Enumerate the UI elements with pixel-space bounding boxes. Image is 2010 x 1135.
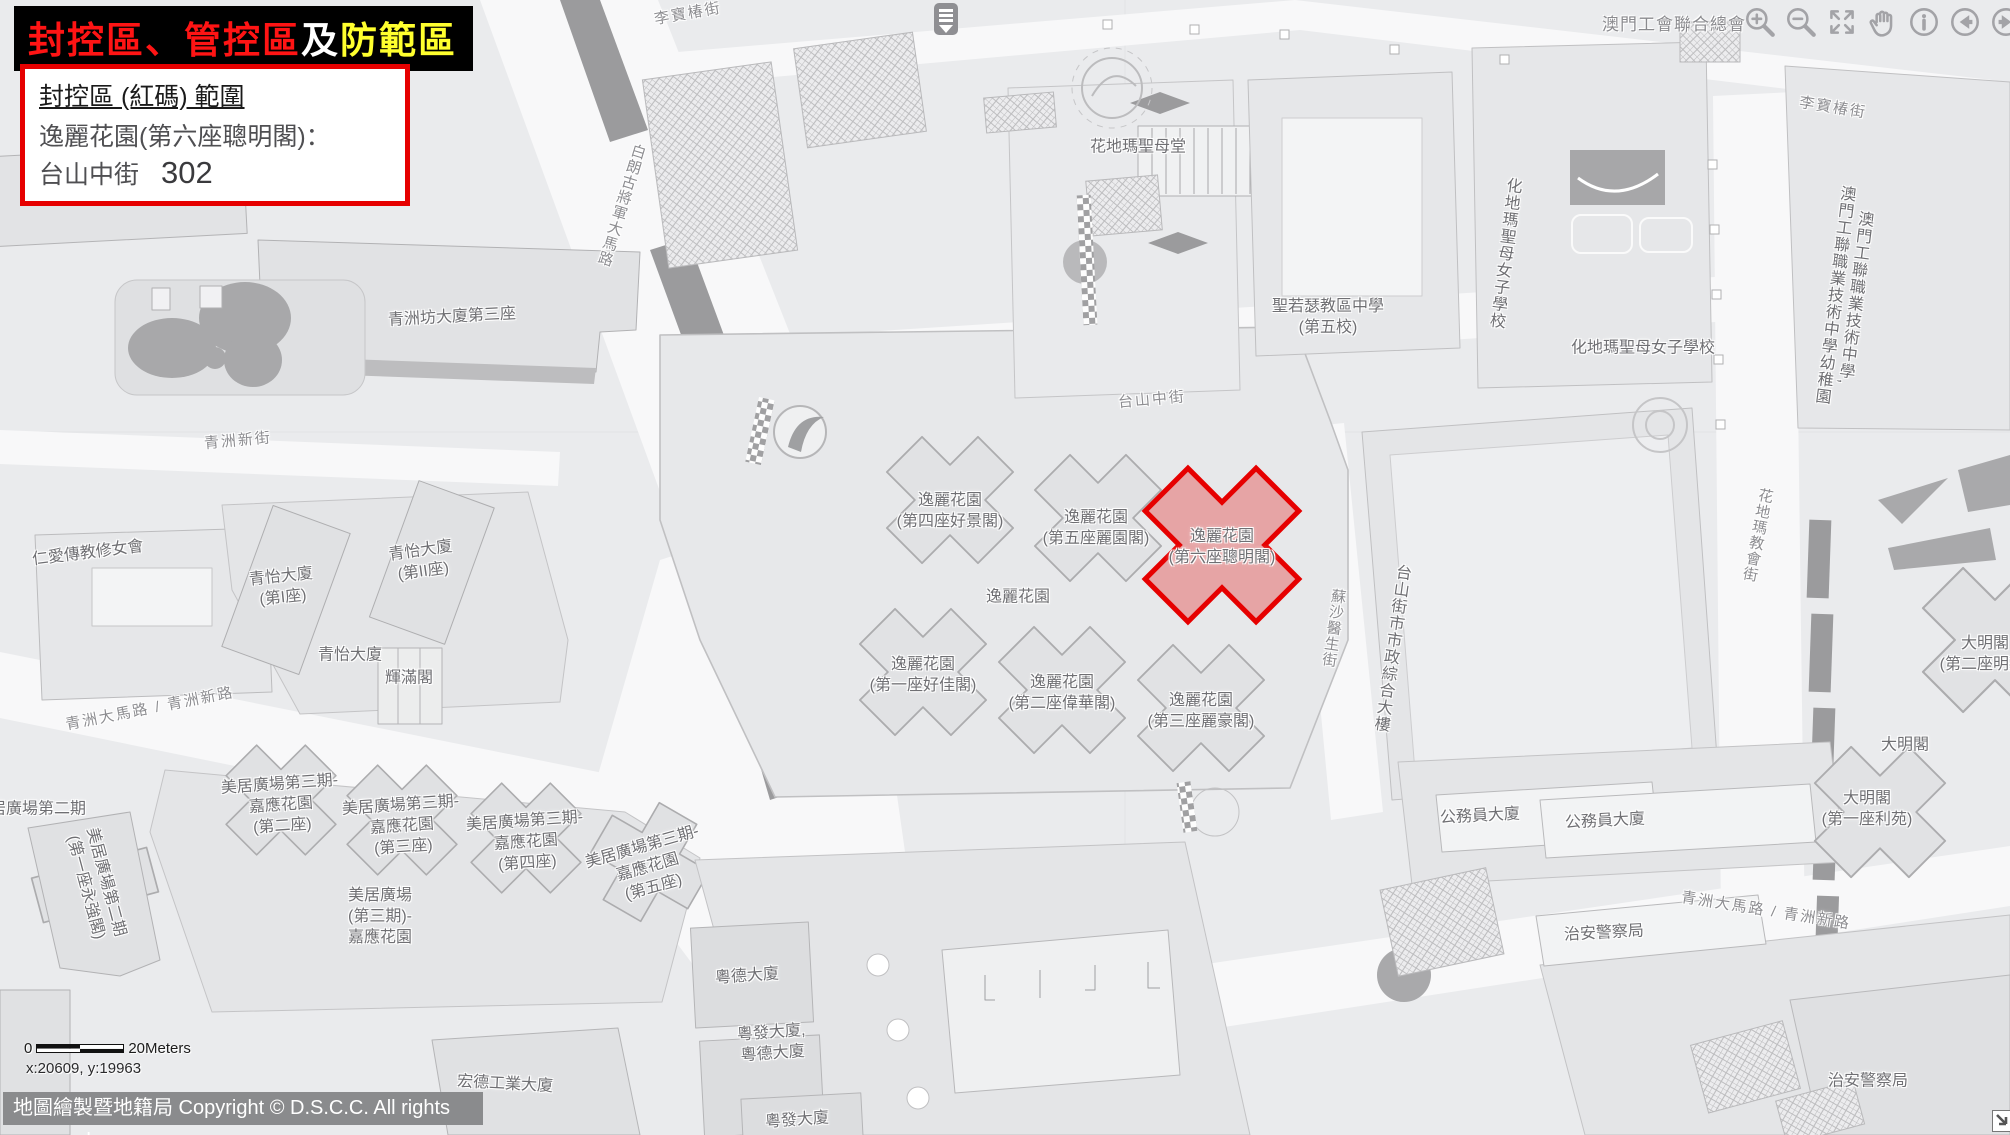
- attribution-bar: 地圖繪製暨地籍局 Copyright © D.S.C.C. All rights…: [3, 1092, 483, 1125]
- zoom-out-icon: [1783, 4, 1819, 40]
- banner-part3: 防範區: [340, 20, 457, 61]
- info-button[interactable]: [1906, 4, 1942, 40]
- scale-bar: 0 20Meters: [24, 1040, 191, 1057]
- info-box-building: 逸麗花園(第六座聰明閣)：: [39, 117, 391, 153]
- previous-icon: [1947, 4, 1983, 40]
- banner-part2: 及: [301, 20, 340, 61]
- scale-zero-label: 0: [24, 1040, 32, 1057]
- lockdown-info-box: 封控區 (紅碼) 範圍 逸麗花園(第六座聰明閣)： 台山中街302: [20, 64, 410, 206]
- page-title-banner: 封控區、管控區及防範區: [14, 6, 473, 71]
- scale-bar-graphic: [36, 1044, 124, 1053]
- zoom-out-button[interactable]: [1783, 4, 1819, 40]
- next-icon: [1988, 4, 2010, 40]
- full-extent-icon: [1824, 4, 1860, 40]
- info-box-number: 302: [161, 155, 213, 190]
- info-box-heading: 封控區 (紅碼) 範圍: [39, 77, 391, 113]
- zoom-in-icon: [1742, 4, 1778, 40]
- pan-button[interactable]: [1865, 4, 1901, 40]
- previous-button[interactable]: [1947, 4, 1983, 40]
- info-box-street: 台山中街: [39, 161, 139, 189]
- map-application: 李寶椿街李寶椿街白朗古將軍大馬路青洲新街台山中街青洲大馬路 / 青洲新路青洲大馬…: [0, 0, 2010, 1135]
- zoom-in-button[interactable]: [1742, 4, 1778, 40]
- banner-part1: 封控區、管控區: [28, 20, 301, 61]
- pan-icon: [1865, 4, 1901, 40]
- info-icon: [1906, 4, 1942, 40]
- layers-marker-icon[interactable]: [933, 2, 959, 45]
- map-toolbar: [1742, 4, 2010, 40]
- scale-distance-label: 20Meters: [128, 1040, 191, 1057]
- cursor-coordinates: x:20609, y:19963: [26, 1060, 141, 1077]
- poi-label-federation: 澳門工會聯合總會: [1596, 10, 1746, 35]
- resize-arrow-icon[interactable]: [1992, 1110, 2010, 1132]
- full-extent-button[interactable]: [1824, 4, 1860, 40]
- next-button[interactable]: [1988, 4, 2010, 40]
- info-box-address: 台山中街302: [39, 155, 391, 191]
